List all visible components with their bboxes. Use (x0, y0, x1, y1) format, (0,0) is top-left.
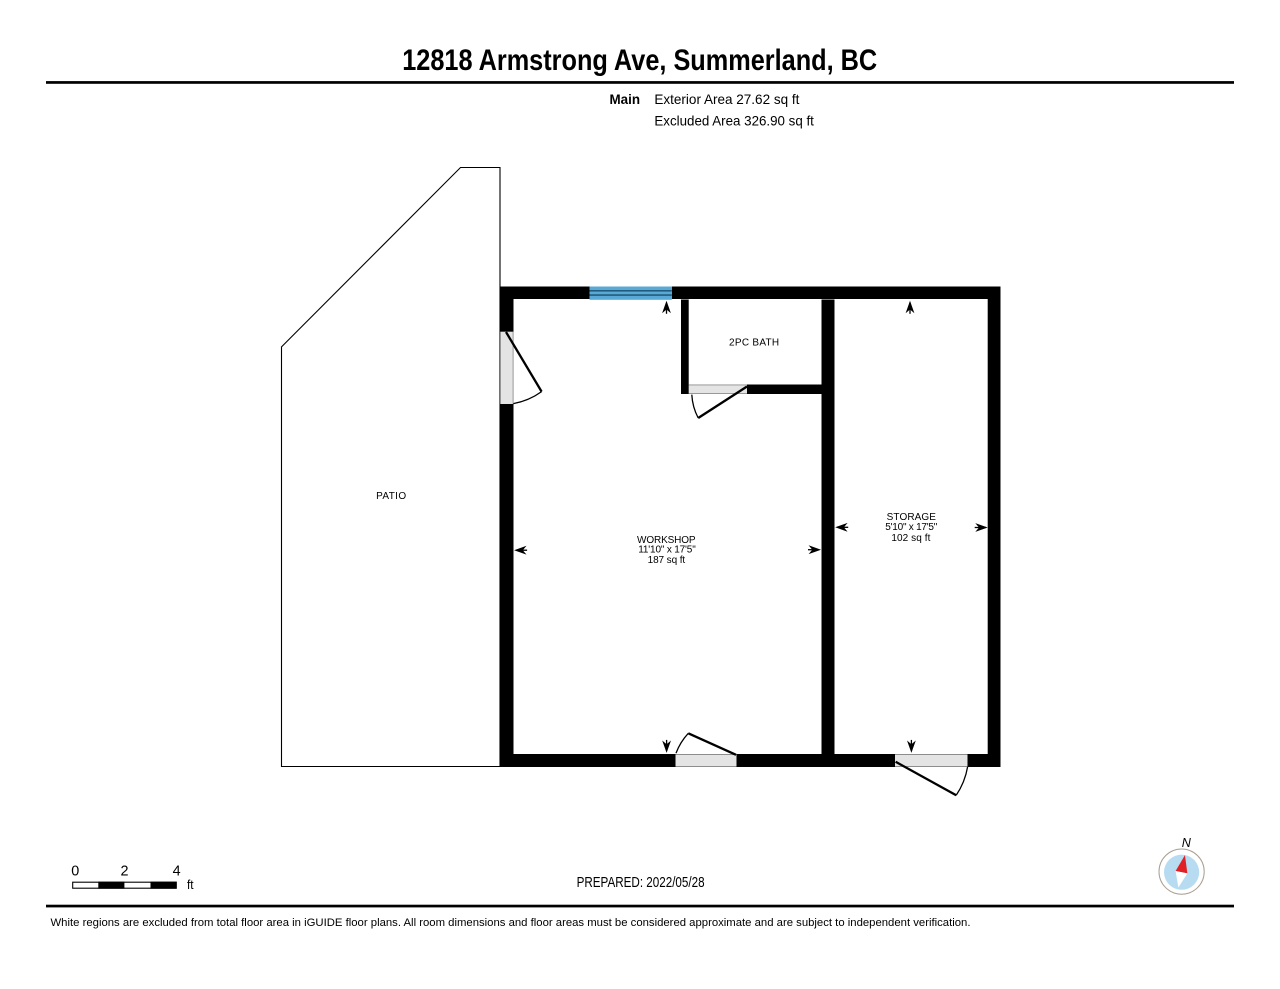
svg-text:187 sq ft: 187 sq ft (648, 555, 686, 566)
svg-text:11'10" x 17'5": 11'10" x 17'5" (638, 545, 696, 556)
svg-text:Exterior Area 27.62 sq ft: Exterior Area 27.62 sq ft (654, 91, 799, 107)
svg-text:5'10" x 17'5": 5'10" x 17'5" (885, 522, 937, 533)
svg-text:4: 4 (173, 863, 181, 880)
svg-text:Main: Main (610, 91, 641, 107)
svg-text:PREPARED: 2022/05/28: PREPARED: 2022/05/28 (577, 874, 705, 891)
svg-text:ft: ft (187, 877, 194, 892)
svg-text:12818 Armstrong Ave, Summerlan: 12818 Armstrong Ave, Summerland, BC (402, 44, 877, 77)
svg-text:Excluded Area 326.90 sq ft: Excluded Area 326.90 sq ft (654, 112, 814, 128)
svg-text:PATIO: PATIO (376, 491, 406, 502)
svg-text:2PC BATH: 2PC BATH (729, 338, 779, 349)
svg-text:0: 0 (71, 863, 79, 880)
svg-text:102 sq ft: 102 sq ft (891, 533, 930, 544)
svg-text:White regions are excluded fro: White regions are excluded from total fl… (51, 917, 971, 929)
svg-text:N: N (1182, 836, 1192, 850)
svg-text:2: 2 (121, 863, 129, 880)
